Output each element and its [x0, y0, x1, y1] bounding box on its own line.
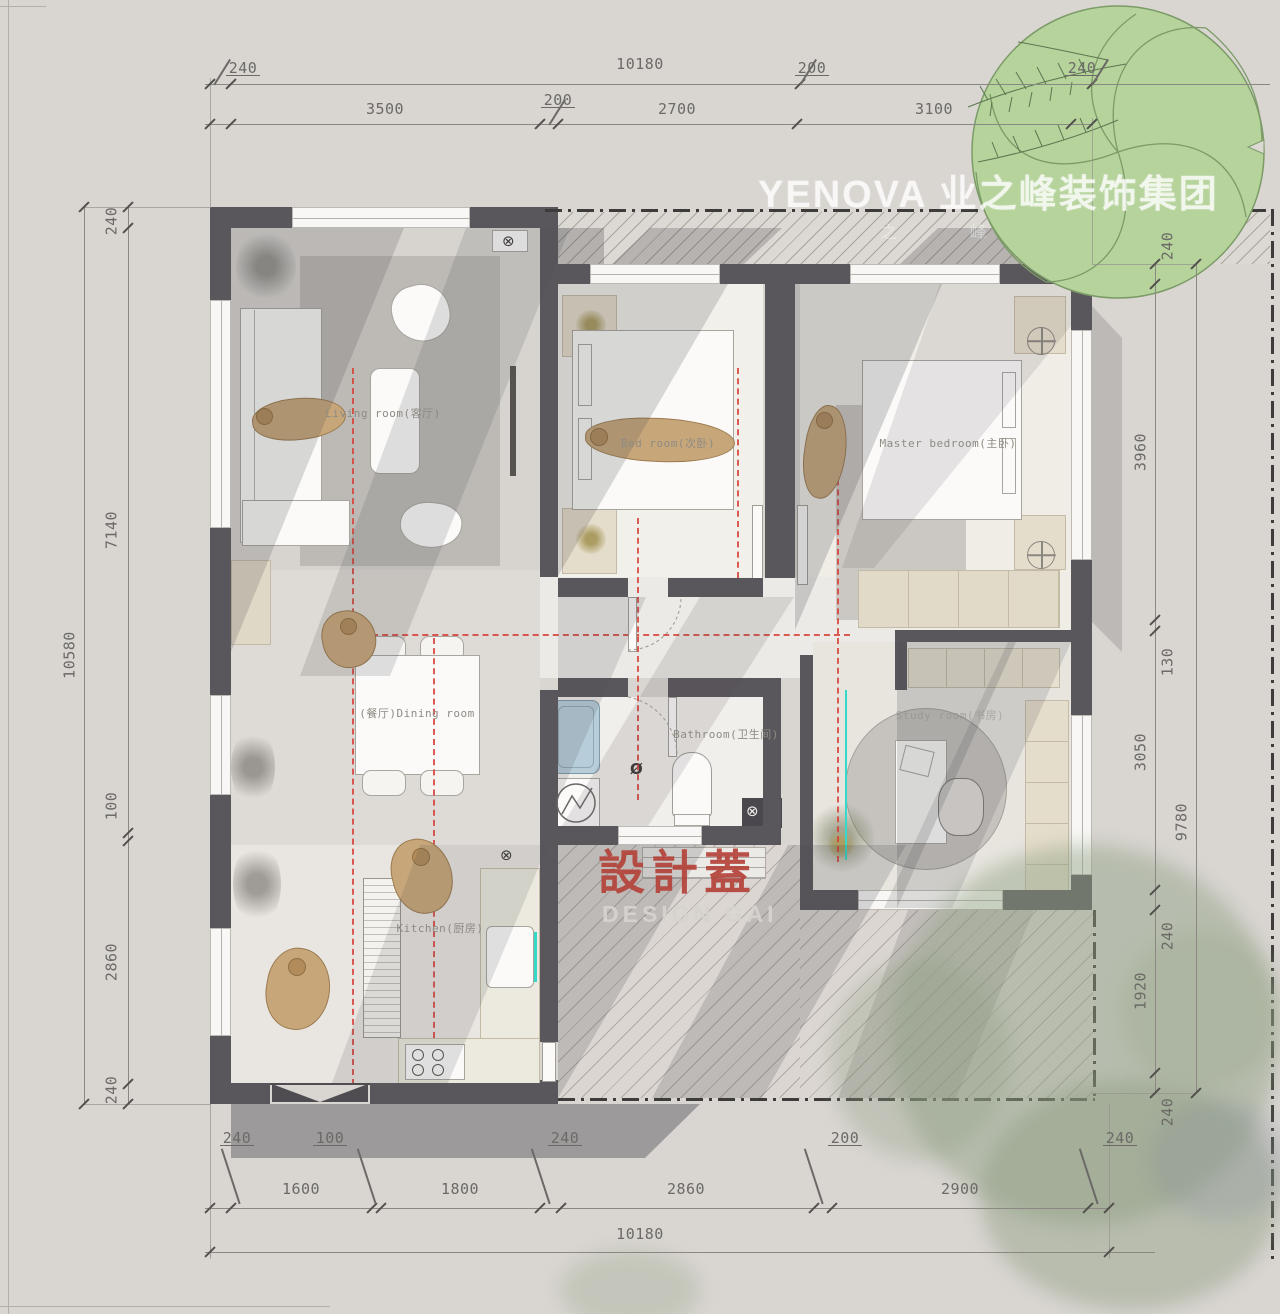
ceiling-fan-icon: [1027, 327, 1055, 355]
wall: [370, 1083, 558, 1104]
dim-label: 1600: [282, 1182, 320, 1197]
fridge: [363, 878, 401, 1038]
dim-label: 2900: [941, 1182, 979, 1197]
dim-label: 10180: [616, 57, 664, 72]
dim-label: 240: [105, 1076, 120, 1105]
dim-label: 2860: [105, 943, 120, 981]
dim-label: 200: [831, 1131, 860, 1146]
dim-label: 2700: [658, 102, 696, 117]
room-label-dining: (餐厅)Dining room: [359, 708, 475, 720]
wall: [763, 678, 781, 845]
wall: [668, 578, 763, 597]
dim-label: 240: [229, 61, 258, 76]
dim-label: 3500: [366, 102, 404, 117]
study-closet: [908, 648, 1060, 688]
toilet-tank: [674, 814, 710, 826]
room-label-bathroom: Bathroom(卫生间): [673, 729, 779, 741]
service-line-red: [352, 634, 850, 636]
window: [618, 826, 702, 845]
dim-label: 100: [316, 1131, 345, 1146]
wall: [558, 678, 628, 697]
study-chair: [938, 778, 984, 836]
dim-label: 3050: [1134, 733, 1149, 771]
master-bed-pillow: [1002, 372, 1016, 428]
service-line-teal: [845, 690, 847, 860]
room-label-bedroom: Bed room(次卧): [621, 438, 715, 450]
wall: [895, 630, 907, 690]
window: [210, 300, 231, 528]
ceiling-lamp-icon: ⊗: [500, 848, 513, 863]
window: [210, 695, 231, 795]
dim-label: 130: [1161, 648, 1176, 677]
kitchen-sink: [486, 926, 534, 988]
dim-label: 3960: [1134, 433, 1149, 471]
stove-burner: [432, 1064, 444, 1076]
dim-label: 9780: [1175, 803, 1190, 841]
master-wardrobe: [858, 570, 1060, 628]
sheet-frame-bottom: [0, 1306, 330, 1307]
wall: [800, 655, 813, 910]
dining-chair: [362, 770, 406, 796]
service-line-red: [737, 368, 739, 578]
dim-label: 240: [1068, 61, 1097, 76]
tree-soft: [560, 1250, 700, 1314]
dim-label: 10580: [63, 631, 78, 679]
tv: [510, 366, 516, 476]
window: [1071, 330, 1092, 560]
dim-label: 200: [544, 93, 573, 108]
dim-label: 240: [551, 1131, 580, 1146]
room-label-study: Study room(书房): [896, 710, 1004, 722]
shoe-cabinet: [231, 560, 271, 645]
person-head: [412, 848, 430, 866]
plant-kitchen-left: [233, 842, 281, 926]
dim-label: 10180: [616, 1227, 664, 1242]
wall: [765, 284, 795, 578]
wall: [540, 207, 558, 577]
dim-label: 240: [1161, 922, 1176, 951]
boundary-line: [1271, 209, 1274, 1259]
service-line-red: [837, 430, 839, 862]
wall: [702, 826, 781, 845]
wall: [668, 678, 763, 697]
stove-burner: [412, 1064, 424, 1076]
person-head: [590, 428, 608, 446]
brand-watermark-slogan: 之 峰: [880, 224, 1021, 241]
dim-label: 240: [223, 1131, 252, 1146]
person-head: [256, 408, 273, 425]
window: [210, 928, 231, 1036]
design-stamp-cn: 設計蓋: [598, 850, 757, 897]
wall: [540, 1080, 558, 1104]
service-line-red: [352, 368, 354, 1085]
door-leaf: [797, 505, 808, 585]
wall: [540, 690, 558, 1042]
plant-pot: [576, 524, 606, 554]
bathtub-inner: [558, 706, 594, 768]
door-leaf: [752, 505, 763, 585]
service-line-red: [433, 638, 435, 1038]
door-leaf: [668, 697, 677, 757]
plant-dining-left: [231, 728, 275, 806]
ceiling-lamp-icon: ⊗: [502, 234, 515, 249]
window: [292, 207, 470, 228]
dim-label: 240: [1161, 232, 1176, 261]
sofa-chaise: [242, 500, 350, 546]
window: [590, 264, 720, 284]
dim-label: 3100: [915, 102, 953, 117]
room-label-living: Living room(客厅): [325, 408, 441, 420]
dim-label: 240: [1161, 1098, 1176, 1127]
person-head: [340, 618, 357, 635]
service-line-red: [637, 518, 639, 800]
ceiling-fan-icon: [1027, 541, 1055, 569]
design-stamp-en: DESIGN GAI: [602, 903, 777, 926]
ceiling-lamp-icon: ⊗: [746, 804, 759, 819]
window: [850, 264, 1000, 284]
dim-label: 1800: [441, 1182, 479, 1197]
dining-chair: [420, 770, 464, 796]
door-leaf: [628, 597, 637, 652]
dim-label: 240: [105, 207, 120, 236]
sheet-frame-top: [0, 6, 46, 7]
coffee-table: [370, 368, 420, 474]
bed-pillow: [578, 344, 592, 406]
washing-machine: [552, 778, 600, 828]
sheet-frame-left: [8, 0, 9, 1314]
dim-label: 2860: [667, 1182, 705, 1197]
dim-label: 100: [105, 792, 120, 821]
dim-label: 7140: [105, 511, 120, 549]
plant-living-corner: [236, 230, 296, 302]
dim-label: 1920: [1134, 972, 1149, 1010]
person-head: [288, 958, 306, 976]
wall: [210, 1083, 270, 1104]
plant-pot: [828, 832, 854, 858]
dim-label: 240: [1106, 1131, 1135, 1146]
wall: [558, 578, 628, 597]
stove-burner: [412, 1049, 424, 1061]
room-label-kitchen: Kitchen(厨房): [396, 923, 483, 935]
person-head: [816, 412, 833, 429]
wall: [540, 826, 618, 845]
brand-watermark: YENOVA 业之峰装饰集团: [758, 176, 1219, 214]
wall: [897, 630, 1072, 642]
plumbing-teal-line: [534, 932, 537, 982]
room-label-master: Master bedroom(主卧): [880, 438, 1017, 450]
balcony-door-leaf: [542, 1042, 556, 1082]
floor-plan-canvas: ⊗ ⊗ Ø ⊗ ⊗: [0, 0, 1280, 1314]
toilet-bowl: [672, 752, 712, 818]
stove-burner: [432, 1049, 444, 1061]
